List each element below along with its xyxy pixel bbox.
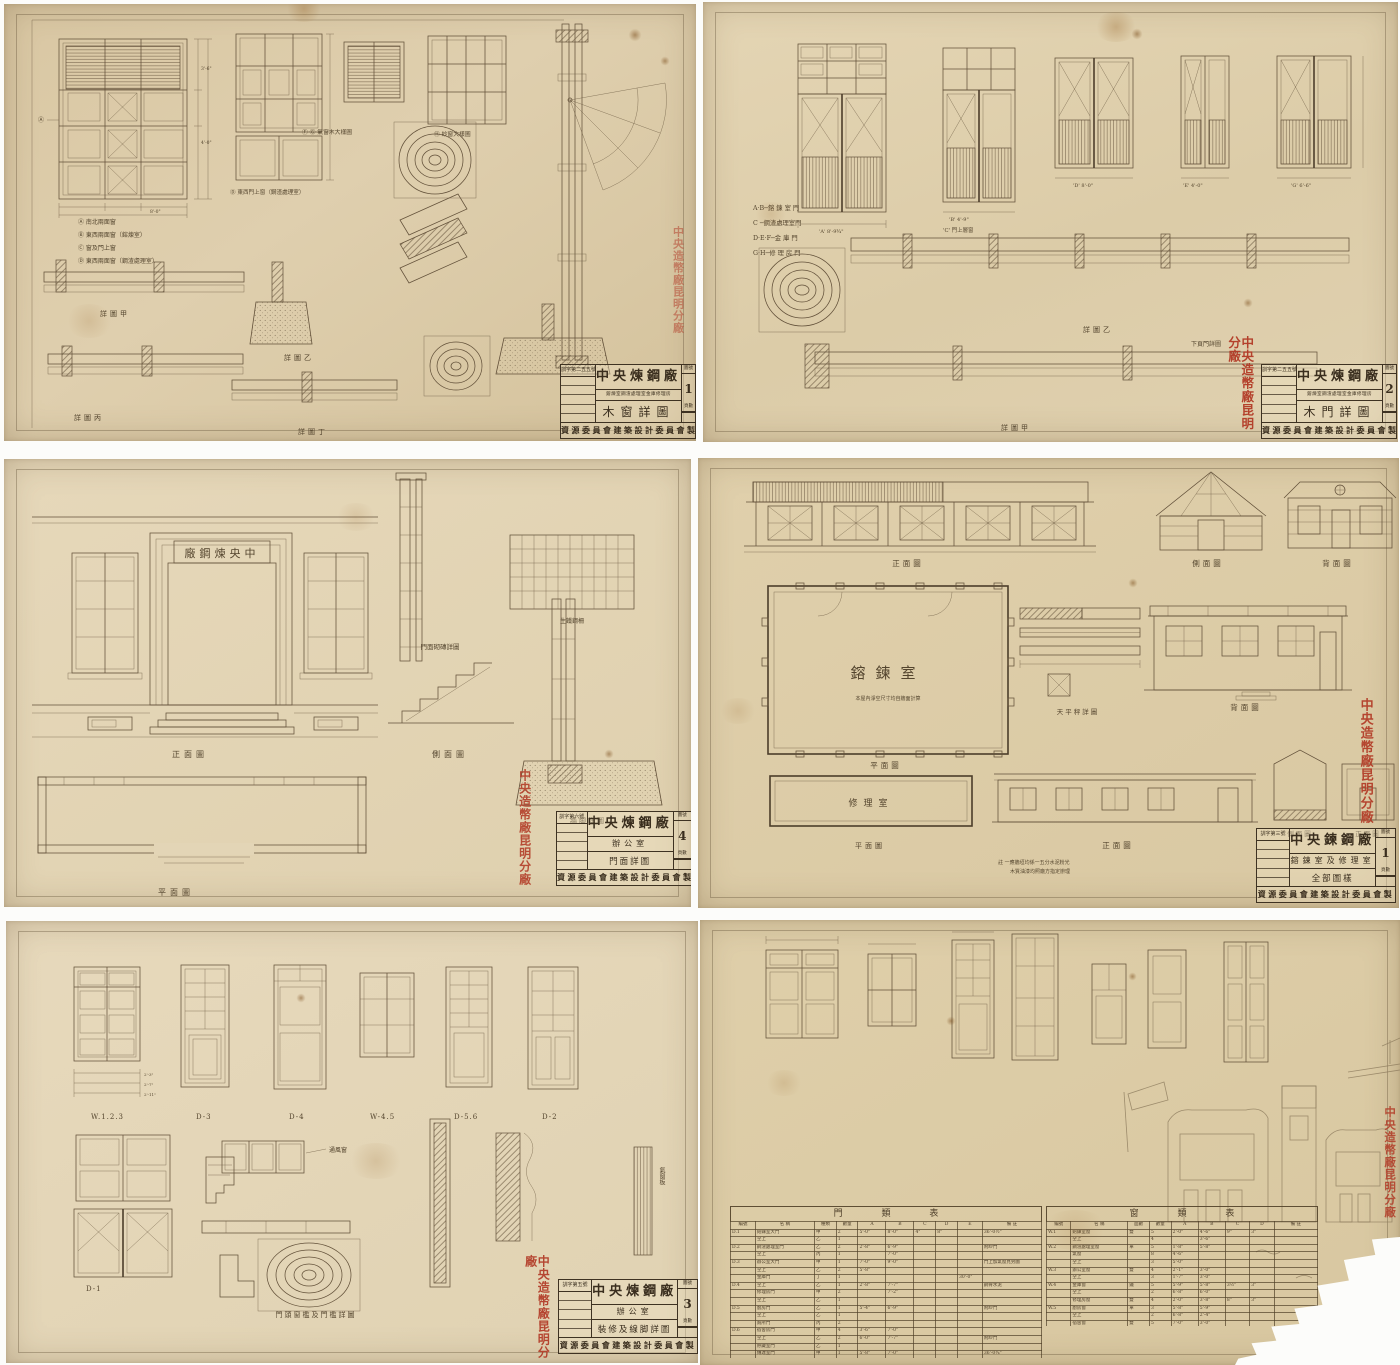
- drawing-title: 裝修及線脚詳圖: [592, 1320, 677, 1337]
- vent-window-strip: 通風窗: [222, 1141, 347, 1173]
- maker-credit: 資源委員會建築設計委員會製: [559, 1337, 697, 1353]
- sheet-number: 2: [1383, 374, 1396, 403]
- step-side-section: 側面圖: [388, 663, 514, 759]
- doc-number: 訓字第二五五號: [1262, 365, 1296, 377]
- small-section-frames: 側面圖 正面圖: [1274, 750, 1394, 838]
- dim-text: 'A' 8'-9¾": [819, 228, 844, 235]
- window-schedule-header: 編號名 稱面數數量ABCD備 註: [1047, 1222, 1318, 1230]
- dim-text: 'D' 8'-0": [1073, 183, 1093, 189]
- dim-text: 2'-11": [144, 1092, 156, 1097]
- beam-details: 天平秤詳圖: [1020, 608, 1140, 716]
- svg-text:Ⓓ 東西兩面窗（鋼渣處理室）: Ⓓ 東西兩面窗（鋼渣處理室）: [78, 257, 158, 265]
- title-block: 訓字第三號 中央鍊鋼廠 鎔鍊室及修理室 全部圖樣 圖號 1 頁數 資源委員會建築…: [1256, 828, 1396, 903]
- dim-text: 2'-7": [144, 1082, 154, 1087]
- plan-note: 本屋內淨空尺寸均自牆面計算: [855, 695, 920, 702]
- wall-footing-section: 牆脚詳圖: [516, 599, 662, 825]
- maker-credit: 資源委員會建築設計委員會製: [561, 422, 695, 438]
- sheet-2-wood-door-details: 'A' 8'-9¾" 'B' 4'-9" 'C' 門上層窗 'D' 8'-0": [703, 2, 1398, 442]
- svg-text:C ─鋼渣處理室門: C ─鋼渣處理室門: [753, 218, 801, 227]
- iron-grate-panel: 生鐵鋼柵: [510, 535, 634, 625]
- table-row: 金庫門丁130'-0": [731, 1275, 1042, 1283]
- pages-label: 頁數: [674, 850, 691, 859]
- dim-text: 'E' 4'-0": [1183, 183, 1203, 189]
- table-row: 貯藏室門乙1: [731, 1343, 1042, 1351]
- office-building-elevation: 背面圖: [1144, 606, 1352, 712]
- pages-label: 頁數: [1383, 403, 1396, 412]
- signature-rows: [1257, 841, 1289, 886]
- sheet-number: 1: [1376, 838, 1395, 867]
- label-plan-2: 平面圖: [855, 842, 885, 850]
- pages-label: 頁數: [1376, 867, 1395, 876]
- window-elevation-d: [428, 36, 506, 124]
- sill-section-3: 詳圖丁: [232, 372, 397, 436]
- section-label: 詳圖甲: [100, 309, 130, 318]
- table-row: 仝上乙1: [731, 1313, 1042, 1321]
- doc-number: 訓字第三號: [1257, 829, 1289, 841]
- sheet-1-wood-window-details: 3'-6" 4'-0" 8'-0" Ⓐ Ⓓ 東西門上窗（鋼渣處理室） Ⓕ Ⓖ 氣…: [4, 4, 696, 441]
- gable-end-elevation: [1156, 472, 1266, 550]
- door-item-6: [1148, 950, 1186, 1048]
- svg-text:Ⓒ 窗及門上窗: Ⓒ 窗及門上窗: [78, 244, 116, 252]
- door-d4: [274, 965, 326, 1089]
- door-d2: [528, 967, 578, 1089]
- dim-text: 'G' 6'-6": [1291, 183, 1311, 189]
- section-label: 詳圖乙: [1083, 325, 1113, 334]
- section-label: 詳圖丁: [298, 427, 328, 436]
- door-elevation-ef: 'E' 4'-0": [1181, 56, 1229, 189]
- label-building-elevation: 背面圖: [1230, 702, 1262, 712]
- label-scale-detail: 天平秤詳圖: [1057, 707, 1100, 716]
- door-item-7: [1224, 942, 1268, 1062]
- elevation-windows: [768, 506, 1076, 540]
- room-name: 鎔鍊室及修理室: [1290, 854, 1375, 869]
- next-page-note: 下頁門詳圖: [1191, 340, 1221, 348]
- pages-label: 頁數: [678, 1318, 697, 1327]
- label-plan: 平面圖: [870, 761, 902, 770]
- sheet-note-1: 註 一應牆垣均係一五分水泥粉光: [998, 859, 1070, 866]
- repair-room-plan: 修理室: [770, 776, 972, 826]
- title-block: 訓字第六號 中央煉鋼廠 辦公室 門面詳圖 圖號 4 頁數 資源委員會建築設計委員…: [556, 811, 691, 886]
- sheet-4-office-facade-details: 廠鋼煉央中 正面圖: [4, 459, 691, 907]
- table-row: 仝上乙25'-8": [731, 1267, 1042, 1275]
- sheet-3-office-trim-details: 2'-3" 2'-7" 2'-11": [6, 921, 698, 1363]
- room-name: 辦公室: [588, 837, 673, 852]
- door-schedule-header: 編號名 稱種類數量ABCDE備 註: [731, 1222, 1042, 1230]
- drawing-title: 門面詳圖: [588, 852, 673, 869]
- title-block: 訓字第五號 中央煉鋼廠 辦公室 裝修及線脚詳圖 圖號 3 頁數 資源委員會建築設…: [558, 1279, 698, 1354]
- door-schedule-rows: D.1鎔鍊室大門甲25'-0"8'-0"4"8"36'-0½"仝上乙1D.2鋼渣…: [731, 1229, 1042, 1358]
- svg-text:Ⓑ 東西兩面窗（鎔煉室）: Ⓑ 東西兩面窗（鎔煉室）: [78, 231, 146, 239]
- table-row: 宿舍窗雙57'-0"3'-0": [1047, 1320, 1318, 1326]
- table-row: 仝上乙1: [731, 1297, 1042, 1305]
- table-row: W.1鎔鍊室窗雙52'-0"4'-6"9"3": [1047, 1229, 1318, 1237]
- legend-list: Ⓐ 南北兩面窗 Ⓑ 東西兩面窗（鎔煉室） Ⓒ 窗及門上窗 Ⓓ 東西兩面窗（鋼渣處…: [78, 218, 158, 265]
- long-front-elevation: [744, 482, 1096, 552]
- subtitle: 鎔煉室鋼渣處理室金庫修理房: [596, 390, 681, 401]
- section-label: 詳圖丙: [74, 413, 104, 422]
- window-w45: [360, 973, 414, 1057]
- maker-credit: 資源委員會建築設計委員會製: [1257, 886, 1395, 902]
- table-row: 修理房窗雙42'-0"3'-8"8"3": [1047, 1297, 1318, 1305]
- label-iron-grate: 生鐵鋼柵: [560, 617, 584, 625]
- pages-label: 頁數: [682, 403, 695, 412]
- table-row: 仝上26'-8"2'-4": [1047, 1313, 1318, 1321]
- dim-text: 3'-6": [201, 66, 212, 72]
- label-vent-board: 氣窗板: [658, 1167, 664, 1185]
- door-item-5: [1092, 964, 1126, 1044]
- label-side-view: 側面圖: [432, 749, 468, 759]
- sheet-door-window-schedules: 門 類 表 編號名 稱種類數量ABCDE備 註 D.1鎔鍊室大門甲25'-0"8…: [700, 920, 1400, 1365]
- table-row: 仝上乙26'-0"7'-7"附紗門: [731, 1335, 1042, 1343]
- table-row: 仝上43'-6": [1047, 1237, 1318, 1245]
- room-label-repair: 修理室: [848, 797, 893, 809]
- sheet-no-label: 圖號: [682, 365, 695, 374]
- sheet-no-label: 圖號: [678, 1280, 697, 1289]
- door-legend: A·B─鎔 鍊 室 門 C ─鋼渣處理室門 D·E·F─金 庫 門 G·H─修 …: [752, 203, 801, 257]
- label-d3: D-3: [196, 1113, 212, 1121]
- factory-name: 中央煉鋼廠: [596, 365, 681, 390]
- rear-elevation: [1284, 482, 1396, 548]
- sill-section-1: 詳圖甲: [44, 260, 244, 318]
- table-row: 氣窗84'-6": [1047, 1252, 1318, 1260]
- scanned-blueprint-collage: 3'-6" 4'-0" 8'-0" Ⓐ Ⓓ 東西門上窗（鋼渣處理室） Ⓕ Ⓖ 氣…: [0, 0, 1400, 1365]
- label-d56: D-5.6: [454, 1113, 478, 1121]
- table-row: D.1鎔鍊室大門甲25'-0"8'-0"4"8"36'-0½": [731, 1229, 1042, 1237]
- door-item-4: [1012, 934, 1058, 1060]
- signature-rows: [1262, 377, 1296, 422]
- label-front-elevation: 正面圖: [892, 559, 924, 568]
- label-front-elevation: 正面圖: [172, 750, 208, 759]
- table-row: W.4金庫窗鐵55'-9"5'-8"3½"3": [1047, 1282, 1318, 1290]
- table-row: D.4仝上乙12'-8"7'-7"鋼骨水泥: [731, 1282, 1042, 1290]
- table-row: W.5廚房窗單35'-8"5'-9": [1047, 1305, 1318, 1313]
- room-label-smelting: 鎔鍊室: [850, 664, 925, 682]
- label-elevation-5: 正面圖: [1102, 841, 1134, 850]
- mark-a: Ⓐ: [38, 116, 44, 124]
- factory-name: 中央煉鋼廠: [592, 1280, 677, 1305]
- table-row: 廁所門丙2: [731, 1320, 1042, 1328]
- door-elevation-gh: 'G' 6'-6": [1277, 56, 1363, 189]
- window-row2: [76, 1135, 170, 1201]
- room-name: 辦公室: [592, 1305, 677, 1320]
- doc-number: 訓字第五號: [559, 1280, 591, 1292]
- label-transom-window: Ⓓ 東西門上窗（鋼渣處理室）: [230, 188, 305, 196]
- jamb-section-with-swing-arc: [556, 24, 666, 368]
- plan-view: 平面圖: [38, 777, 366, 897]
- door-schedule-title: 門 類 表: [730, 1206, 1042, 1221]
- label-rear-elevation: 背面圖: [1322, 558, 1354, 568]
- sheet-number: 4: [674, 821, 691, 850]
- door-elevation-bc: 'B' 4'-9" 'C' 門上層窗: [943, 48, 1015, 234]
- door-elevation-d: 'D' 8'-0": [1055, 58, 1133, 189]
- sheet-number: 3: [678, 1289, 697, 1318]
- sill-section-strip: 詳圖甲: [805, 344, 1317, 432]
- table-row: D.5廚房門乙15'-4"6'-9"附紗門: [731, 1305, 1042, 1313]
- pier-section: [396, 473, 426, 661]
- svg-text:G·H─修 理 房 門: G·H─修 理 房 門: [753, 248, 801, 257]
- signature-rows: [561, 377, 595, 422]
- title-block: 訓字第二五五號 中央煉鋼廠 鎔煉室鋼渣處理室金庫修理房 木門詳圖 圖號 2 頁數…: [1261, 364, 1397, 439]
- drawing-title: 木門詳圖: [1297, 401, 1382, 422]
- window-elevation-c: [344, 42, 404, 102]
- table-row: 仝上35'-0": [1047, 1259, 1318, 1267]
- sheet-number: 1: [682, 374, 695, 403]
- table-row: 傳達室門甲15'-8"7'-0"36'-0¾": [731, 1351, 1042, 1358]
- title-block: 訓字第二五五號 中央煉鋼廠 鎔煉室鋼渣處理室金庫修理房 木窗詳圖 圖號 1 頁數…: [560, 364, 696, 439]
- label-w123: W.1.2.3: [91, 1113, 124, 1121]
- front-elevation: 廠鋼煉央中 正面圖: [32, 517, 378, 759]
- label-d1: D-1: [86, 1285, 102, 1293]
- door-d56: [446, 967, 492, 1087]
- drawing-title: 木窗詳圖: [596, 401, 681, 422]
- label-plan-view: 平面圖: [158, 888, 194, 897]
- table-row: W.2鋼渣處理室窗單51'-8"5'-8": [1047, 1244, 1318, 1252]
- factory-name: 中央煉鋼廠: [1297, 365, 1382, 390]
- svg-text:Ⓐ 南北兩面窗: Ⓐ 南北兩面窗: [78, 218, 116, 226]
- doc-number: 訓字第六號: [557, 812, 587, 824]
- factory-signboard: 廠鋼煉央中: [185, 546, 260, 560]
- window-schedule-rows: W.1鎔鍊室窗雙52'-0"4'-6"9"3"仝上43'-6"W.2鋼渣處理室窗…: [1047, 1229, 1318, 1326]
- dim-text: 2'-3": [144, 1072, 154, 1077]
- sheet-note-2: 木質油漆均照廠方指定辦理: [1010, 868, 1070, 875]
- sill-section-2: 詳圖丙: [48, 346, 243, 422]
- sheet-no-label: 圖號: [1376, 829, 1395, 838]
- factory-name: 中央煉鋼廠: [588, 812, 673, 837]
- factory-name: 中央鍊鋼廠: [1290, 829, 1375, 854]
- head-section-strip: 詳圖乙: [759, 234, 1349, 334]
- window-elevation-b: [236, 34, 334, 180]
- label-brick-detail: 門面砌磚詳圖: [421, 642, 460, 651]
- subtitle: 鎔煉室鋼渣處理室金庫修理房: [1297, 390, 1382, 401]
- table-row: D.6宿舍房門甲43'-6"7'-0": [731, 1328, 1042, 1336]
- window-elevation-a: 3'-6" 4'-0" 8'-0" Ⓐ: [38, 39, 212, 218]
- door-d3: [181, 965, 229, 1087]
- label-side-elevation: 側面圖: [1192, 558, 1224, 568]
- table-row: 仝上乙1: [731, 1237, 1042, 1245]
- window-schedule-title: 窗 類 表: [1046, 1206, 1318, 1221]
- table-row: D.3辦公室大門甲17'-0"9'-0"門上加氣窗見另圖: [731, 1259, 1042, 1267]
- svg-text:D·E·F─金 庫 門: D·E·F─金 庫 門: [753, 233, 798, 242]
- maker-credit: 資源委員會建築設計委員會製: [1262, 422, 1396, 438]
- label-transom: 'C' 門上層窗: [943, 226, 973, 234]
- window-item-1: [766, 936, 838, 1038]
- dim-text: 4'-0": [201, 140, 212, 146]
- section-label: 詳圖甲: [1001, 423, 1031, 432]
- svg-text:A·B─鎔 鍊 室 門: A·B─鎔 鍊 室 門: [752, 203, 799, 212]
- door-elevation-a: 'A' 8'-9¾": [798, 44, 886, 235]
- sheet-no-label: 圖號: [1383, 365, 1396, 374]
- table-row: 仝上31'-7"3'-0": [1047, 1275, 1318, 1283]
- table-row: 仝上丙17'-0": [731, 1252, 1042, 1260]
- footing-section: 詳圖乙: [250, 262, 314, 362]
- signature-rows: [557, 824, 587, 869]
- smelting-room-plan: 鎔鍊室 本屋內淨空尺寸均自牆面計算: [762, 583, 1014, 757]
- table-row: 仝上26'-8"6'-0": [1047, 1290, 1318, 1298]
- doc-number: 訓字第二五五號: [561, 365, 595, 377]
- door-schedule: 門 類 表 編號名 稱種類數量ABCDE備 註 D.1鎔鍊室大門甲25'-0"8…: [730, 1206, 1042, 1358]
- door-item-3: [952, 932, 994, 1058]
- window-w123: 2'-3" 2'-7" 2'-11": [74, 967, 156, 1097]
- label-head-sill-detail: 門頭窗檻及門檻詳圖: [276, 1310, 357, 1319]
- wood-grain-detail: [394, 122, 476, 283]
- window-item-2: [868, 944, 916, 1026]
- signature-rows: [559, 1292, 591, 1337]
- window-schedule: 窗 類 表 編號名 稱面數數量ABCD備 註 W.1鎔鍊室窗雙52'-0"4'-…: [1046, 1206, 1318, 1326]
- table-row: 修理房門甲27'-2": [731, 1290, 1042, 1298]
- sheet-1-smelting-repair-room-drawings: 正面圖 側面圖 背面圖 鎔鍊室 本屋內淨空尺寸均自牆面計算 平面圖 天平秤詳圖: [698, 458, 1399, 908]
- label-d2: D-2: [542, 1113, 558, 1121]
- repair-room-elevation: 正面圖: [992, 774, 1258, 850]
- table-row: W.3辦公室窗雙42'-1"3'-0": [1047, 1267, 1318, 1275]
- dim-text: 8'-0": [150, 209, 161, 215]
- door-d1: D-1: [74, 1209, 172, 1293]
- sheet-no-label: 圖號: [674, 812, 691, 821]
- section-label: 詳圖乙: [284, 353, 314, 362]
- label-vent-window: 通風窗: [329, 1146, 347, 1154]
- label-d4: D-4: [289, 1113, 305, 1121]
- label-w45: W-4.5: [370, 1113, 395, 1121]
- drawing-title: 全部圖樣: [1290, 869, 1375, 886]
- label-vent-window: Ⓕ Ⓖ 氣窗木大樣圖: [302, 128, 352, 136]
- table-row: D.2鋼渣處理室門乙22'-8"6'-9"附紗門: [731, 1244, 1042, 1252]
- dim-text: 'B' 4'-9": [949, 217, 969, 223]
- maker-credit: 資源委員會建築設計委員會製: [557, 869, 691, 885]
